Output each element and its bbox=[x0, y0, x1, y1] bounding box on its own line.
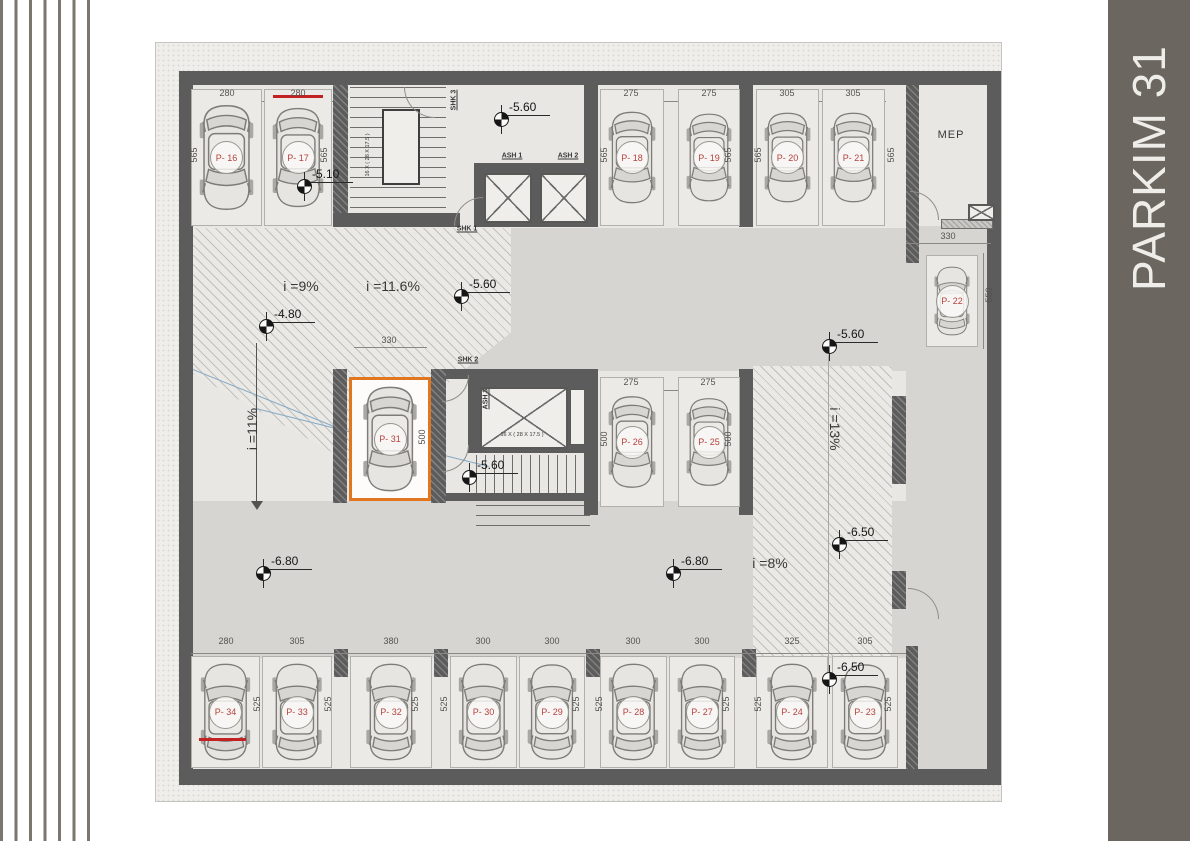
dimension-label: 305 bbox=[845, 88, 860, 98]
dimension-label: 525 bbox=[594, 696, 604, 711]
dimension-label: 280 bbox=[219, 88, 234, 98]
level-value: -5.60 bbox=[467, 277, 510, 293]
parking-spot-P-30: P- 30 bbox=[450, 656, 517, 768]
dimension-label: 565 bbox=[319, 147, 329, 162]
annotation-overlay: P- 16P- 17P- 18P- 19P- 20P- 21P- 22P- 31… bbox=[156, 43, 1001, 801]
dimension-label: 280 bbox=[218, 636, 233, 646]
dimension-label: 300 bbox=[694, 636, 709, 646]
dimension-label: 300 bbox=[544, 636, 559, 646]
parking-spot-label: P- 26 bbox=[601, 378, 663, 506]
dimension-label: 275 bbox=[623, 377, 638, 387]
stair-shk2-label: SHK 2 bbox=[458, 357, 479, 364]
dimension-label: 305 bbox=[857, 636, 872, 646]
dimension-label: 525 bbox=[439, 696, 449, 711]
elevator-ash3-label: ASH 3 bbox=[483, 389, 490, 410]
parking-spot-label: P- 24 bbox=[757, 657, 827, 767]
stair-dimension-note: 16 X ( 28 X 17.5 ) bbox=[365, 133, 371, 176]
dimension-label: 550 bbox=[984, 287, 994, 302]
parking-spot-P-29: P- 29 bbox=[519, 656, 585, 768]
dimension-label: 275 bbox=[623, 88, 638, 98]
parking-spot-label: P- 30 bbox=[451, 657, 516, 767]
dimension-label: 525 bbox=[323, 696, 333, 711]
dimension-label: 500 bbox=[417, 429, 427, 444]
dimension-label: 525 bbox=[883, 696, 893, 711]
dimension-label: 300 bbox=[475, 636, 490, 646]
dimension-label: 565 bbox=[753, 147, 763, 162]
dimension-label: 525 bbox=[571, 696, 581, 711]
mep-room-label: MEP bbox=[938, 129, 965, 141]
parking-spot-P-26: P- 26 bbox=[600, 377, 664, 507]
parking-spot-P-21: P- 21 bbox=[822, 89, 885, 226]
dimension-label: 565 bbox=[886, 147, 896, 162]
parking-spot-P-32: P- 32 bbox=[350, 656, 432, 768]
parking-spot-P-20: P- 20 bbox=[756, 89, 819, 226]
level-value: -5.60 bbox=[475, 458, 518, 474]
parking-spot-label: P- 34 bbox=[192, 657, 259, 767]
left-decoration-lines bbox=[0, 0, 90, 841]
dimension-label: 565 bbox=[189, 147, 199, 162]
parking-spot-label: P- 27 bbox=[670, 657, 734, 767]
dimension-label: 325 bbox=[784, 636, 799, 646]
dimension-label: 305 bbox=[289, 636, 304, 646]
parking-spot-label: P- 29 bbox=[520, 657, 584, 767]
slope-label: i =8% bbox=[752, 555, 787, 571]
parking-spot-label: P- 20 bbox=[757, 90, 818, 225]
dimension-label: 280 bbox=[290, 88, 305, 98]
dimension-label: 275 bbox=[701, 88, 716, 98]
floor-plan: P- 16P- 17P- 18P- 19P- 20P- 21P- 22P- 31… bbox=[155, 42, 1002, 802]
stair-dimension-note: 16 X ( 28 X 17.5 ) bbox=[500, 432, 543, 438]
elevator-ash2-label: ASH 2 bbox=[558, 153, 579, 160]
dimension-label: 525 bbox=[753, 696, 763, 711]
dimension-label: 525 bbox=[721, 696, 731, 711]
stair-shk1-label: SHK 1 bbox=[457, 226, 478, 233]
dimension-label: 565 bbox=[599, 147, 609, 162]
parking-spot-P-18: P- 18 bbox=[600, 89, 664, 226]
parking-spot-P-28: P- 28 bbox=[600, 656, 667, 768]
parking-spot-P-22: P- 22 bbox=[926, 255, 978, 347]
parking-spot-label: P- 32 bbox=[351, 657, 431, 767]
parking-spot-P-24: P- 24 bbox=[756, 656, 828, 768]
slope-label: i =9% bbox=[283, 278, 318, 294]
parking-spot-P-16: P- 16 bbox=[191, 89, 262, 226]
level-value: -6.50 bbox=[835, 660, 878, 676]
dimension-label: 330 bbox=[940, 231, 955, 241]
dimension-label: 330 bbox=[381, 335, 396, 345]
parking-spot-P-34: P- 34 bbox=[191, 656, 260, 768]
dimension-label: 500 bbox=[723, 431, 733, 446]
dimension-label: 305 bbox=[779, 88, 794, 98]
slope-label: i =11.6% bbox=[366, 278, 420, 294]
level-value: -6.80 bbox=[269, 554, 312, 570]
dimension-label: 525 bbox=[410, 696, 420, 711]
parking-spot-label: P- 22 bbox=[927, 256, 977, 346]
parking-spot-P-33: P- 33 bbox=[262, 656, 332, 768]
dimension-label: 525 bbox=[252, 696, 262, 711]
elevator-ash1-label: ASH 1 bbox=[502, 153, 523, 160]
dimension-label: 500 bbox=[599, 431, 609, 446]
side-panel-title: PARKIM 31 bbox=[1108, 18, 1190, 318]
level-value: -4.80 bbox=[272, 307, 315, 323]
parking-spot-label: P- 33 bbox=[263, 657, 331, 767]
level-value: -5.10 bbox=[310, 167, 353, 183]
parking-spot-label: P- 18 bbox=[601, 90, 663, 225]
dimension-label: 300 bbox=[625, 636, 640, 646]
parking-spot-label: P- 21 bbox=[823, 90, 884, 225]
parking-spot-label: P- 28 bbox=[601, 657, 666, 767]
level-value: -5.60 bbox=[835, 327, 878, 343]
level-value: -5.60 bbox=[507, 100, 550, 116]
dimension-label: 380 bbox=[383, 636, 398, 646]
slope-label: i =13% bbox=[827, 407, 843, 450]
dimension-label: 275 bbox=[700, 377, 715, 387]
stair-shk3-label: SHK 3 bbox=[451, 90, 458, 111]
parking-spot-P-27: P- 27 bbox=[669, 656, 735, 768]
level-value: -6.50 bbox=[845, 525, 888, 541]
level-value: -6.80 bbox=[679, 554, 722, 570]
page: { "side_panel": {"title": "PARKIM 31", "… bbox=[0, 0, 1190, 841]
dimension-label: 565 bbox=[723, 147, 733, 162]
slope-label: i =11% bbox=[244, 408, 260, 450]
parking-spot-label: P- 16 bbox=[192, 90, 261, 225]
side-panel: PARKIM 31 bbox=[1108, 0, 1190, 841]
